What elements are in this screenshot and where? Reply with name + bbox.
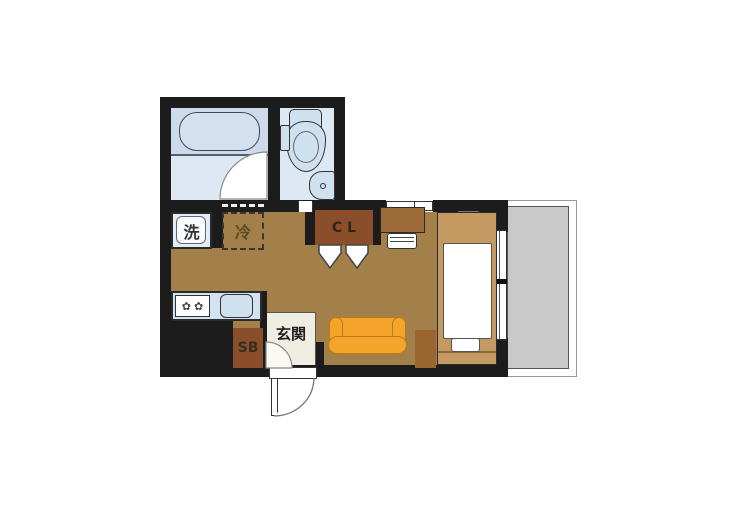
entrance-door-swing <box>270 374 320 420</box>
balcony-window-rail <box>499 231 500 339</box>
closet-box: CL <box>315 210 373 245</box>
wall-bath-right <box>334 97 345 212</box>
bed-pillow <box>451 338 480 352</box>
stove: ✿✿ <box>175 295 210 317</box>
toilet-seat-ring <box>293 131 319 163</box>
chair <box>387 233 417 249</box>
wall-top <box>160 97 345 108</box>
kitchen-sink <box>220 294 253 318</box>
balcony-deck <box>507 206 569 369</box>
wall-kitchen-mass <box>160 317 233 377</box>
washing-machine-label: 洗 <box>171 212 212 249</box>
floorplan-image: ✿✿ 洗 冷 CL SB 玄関 <box>0 0 729 516</box>
sofa-seat <box>328 336 407 354</box>
toilet-control-panel <box>280 125 290 151</box>
wall-hatch-dashes <box>222 204 264 207</box>
closet-hangers-icon <box>317 244 371 270</box>
desk <box>380 207 425 233</box>
bed-mattress <box>443 243 492 339</box>
refrigerator-space: 冷 <box>222 212 264 250</box>
wall-right-upper <box>496 200 508 232</box>
toilet-sink-drain <box>320 183 326 189</box>
toilet-door-opening <box>298 201 313 212</box>
stove-burner-icon: ✿ <box>194 300 203 313</box>
wall-closet-left <box>305 212 315 245</box>
wall-entrance-right <box>316 342 324 377</box>
entrance-inner-swing <box>264 340 296 370</box>
bathtub <box>179 112 260 151</box>
shoe-box: SB <box>233 328 263 368</box>
side-table <box>415 330 436 368</box>
bathroom-door-swing <box>218 150 270 202</box>
stove-burner-icon: ✿ <box>182 300 191 313</box>
